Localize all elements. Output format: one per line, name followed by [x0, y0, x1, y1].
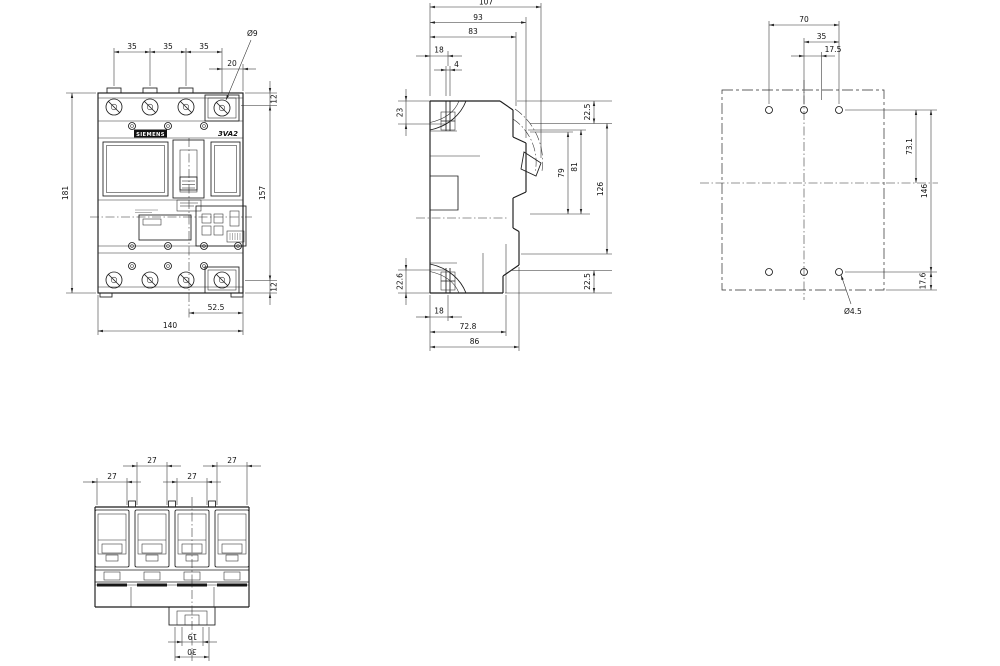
dim-terminal-width-2: 27: [147, 456, 157, 465]
dim-front-span: 126: [596, 182, 605, 197]
dim-overall-depth: 107: [479, 0, 494, 7]
model-label: 3VA2: [218, 130, 238, 138]
dim-neutral-margin: 20: [227, 59, 237, 68]
dim-top-offset: 12: [270, 94, 279, 104]
dim-bottom-edge-offset: 17.6: [919, 272, 928, 289]
dim-screw-offset-top: 18: [434, 46, 444, 55]
drawing-background: [0, 0, 1000, 666]
dim-foot-slot-width: 19: [188, 632, 198, 641]
dim-overall-width: 140: [163, 321, 178, 330]
dim-mounting-hole-dia: Ø4.5: [844, 307, 862, 316]
dim-pole-pitch-2: 35: [163, 42, 173, 51]
dim-terminal-span: 157: [258, 186, 267, 201]
dim-front-bottom-offset: 22.5: [583, 273, 592, 290]
dim-center-to-edge: 52.5: [208, 303, 225, 312]
dim-window-height: 79: [557, 168, 566, 178]
dim-bottom-offset: 12: [270, 282, 279, 292]
dim-rear-bottom-offset: 22.6: [396, 273, 405, 290]
dim-half-pitch: 17.5: [825, 45, 842, 54]
dim-screw-slot-width: 4: [454, 60, 459, 69]
brand-label: SIEMENS: [136, 132, 165, 138]
dim-front-depth: 83: [468, 27, 478, 36]
dim-screw-offset-bottom: 18: [434, 307, 444, 316]
dim-terminal-width-4: 27: [227, 456, 237, 465]
dim-front-top-offset: 22.5: [583, 103, 592, 120]
dim-rear-top-offset: 23: [396, 108, 405, 118]
dim-hole-pitch: 35: [817, 32, 827, 41]
dim-outer-hole-span: 70: [799, 15, 809, 24]
dim-terminal-width-1: 27: [107, 472, 117, 481]
dim-foot-width: 30: [187, 647, 197, 656]
dim-pole-pitch-3: 35: [199, 42, 209, 51]
dim-terminal-hole-dia: Ø9: [247, 29, 258, 38]
dim-escutcheon-depth: 93: [473, 13, 483, 22]
dim-body-depth: 86: [470, 337, 480, 346]
dim-overall-height: 181: [61, 186, 70, 201]
dim-pole-pitch-1: 35: [127, 42, 137, 51]
dim-row-to-center: 73.1: [905, 138, 914, 155]
dim-terminal-width-3: 27: [187, 472, 197, 481]
dim-row-span: 146: [920, 184, 929, 199]
technical-drawing-canvas: SIEMENS 3VA2: [0, 0, 1000, 666]
dim-cover-height: 81: [570, 162, 579, 172]
dimension-drawing-page: SIEMENS 3VA2: [0, 0, 1000, 666]
dim-base-depth: 72.8: [460, 322, 477, 331]
